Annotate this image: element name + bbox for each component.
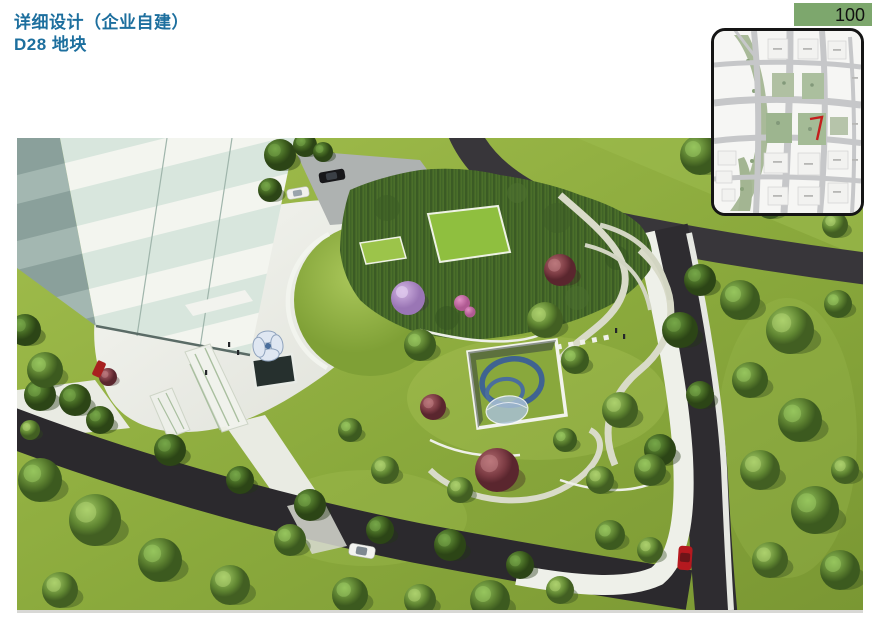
page-title-line1: 详细设计（企业自建）	[14, 13, 189, 32]
car-red-right	[677, 546, 693, 571]
location-map-inset	[711, 28, 864, 216]
page-number: 100	[835, 6, 865, 24]
page-title: 详细设计（企业自建）D28 地块	[14, 12, 189, 57]
page-title-line2: D28 地块	[14, 35, 87, 54]
green-roof	[428, 206, 510, 262]
page-number-tab: 100	[794, 3, 872, 26]
location-map	[714, 31, 861, 213]
rendering-bottom-edge	[17, 610, 863, 613]
pink-flowering-shrub	[465, 307, 476, 318]
document-page: { "header": { "title_line1": "详细设计（企业自建）…	[0, 0, 872, 617]
sunken-courtyard	[468, 340, 566, 428]
